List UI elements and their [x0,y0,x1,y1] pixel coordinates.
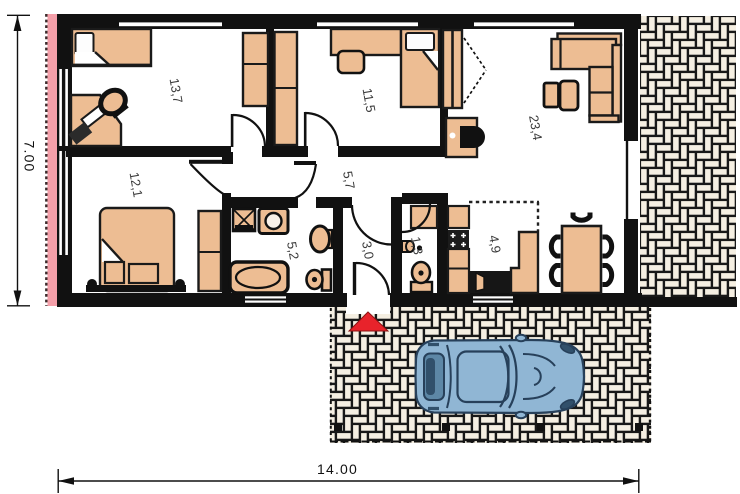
svg-text:5,7: 5,7 [340,170,358,190]
svg-text:7.00: 7.00 [22,141,38,173]
svg-text:14.00: 14.00 [317,461,358,477]
svg-text:4,9: 4,9 [486,234,504,254]
svg-text:3,0: 3,0 [359,240,377,260]
svg-text:5,2: 5,2 [284,240,302,260]
svg-text:1,3: 1,3 [408,235,426,255]
